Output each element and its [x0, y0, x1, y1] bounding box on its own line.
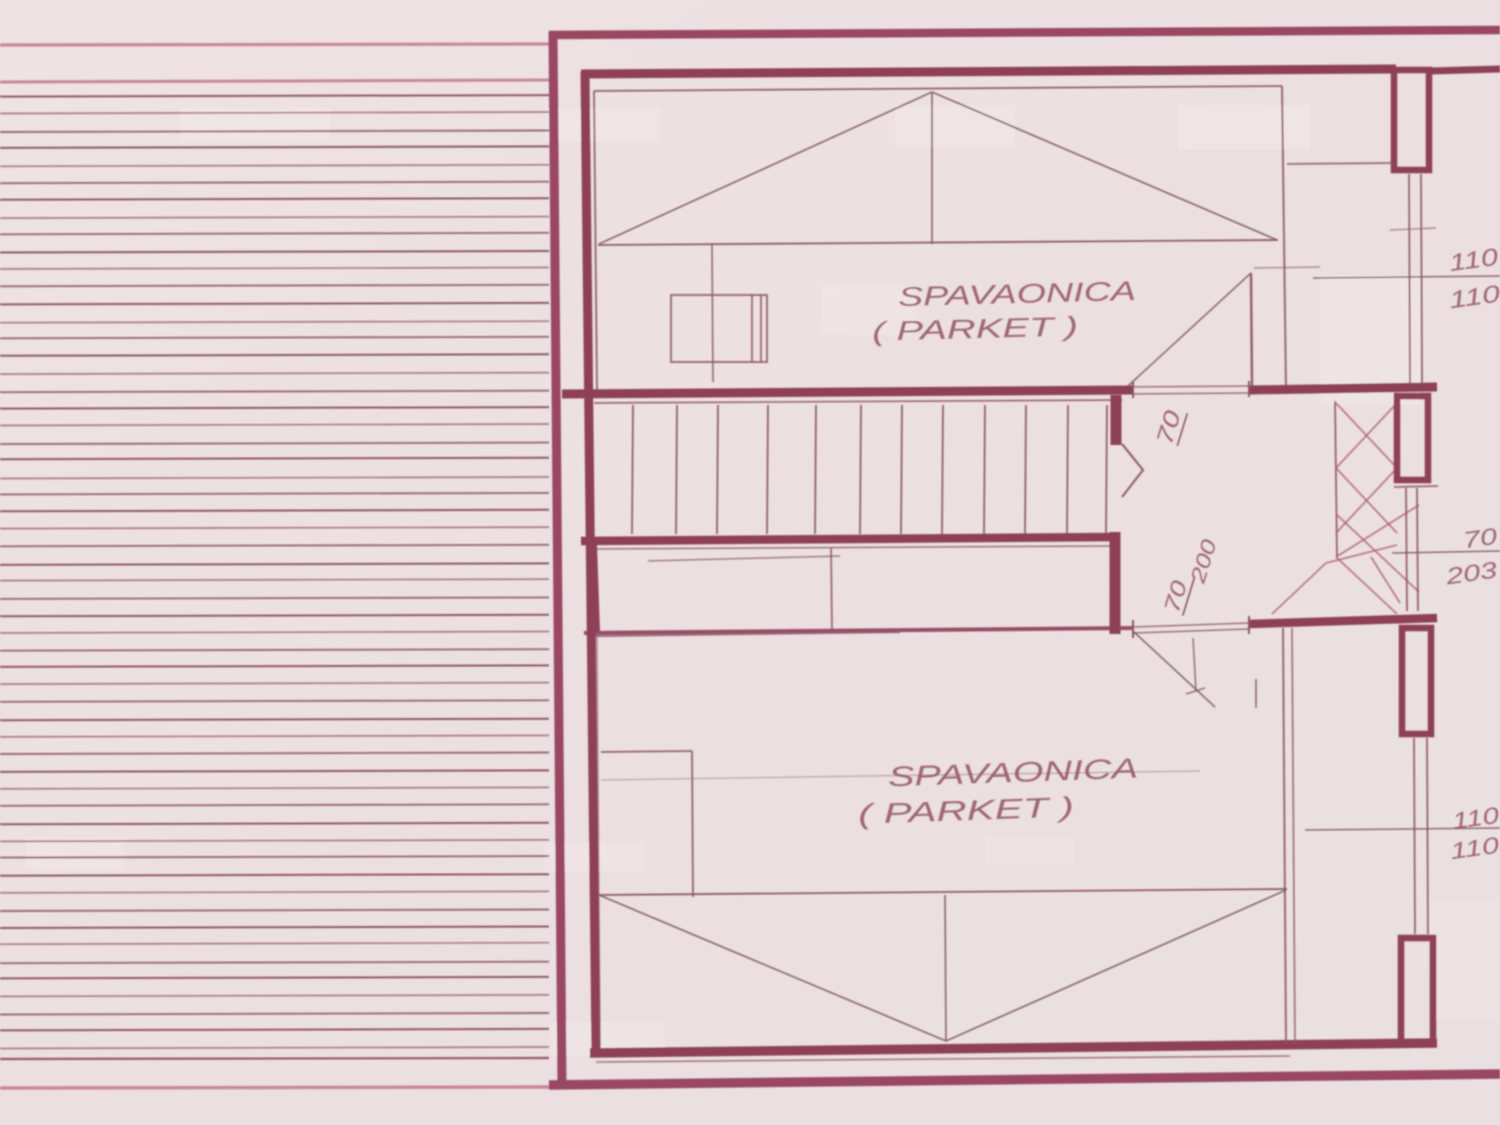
- svg-text:( PARKET ): ( PARKET ): [872, 311, 1079, 346]
- svg-text:70: 70: [1461, 523, 1499, 554]
- svg-text:SPAVAONICA: SPAVAONICA: [898, 276, 1137, 312]
